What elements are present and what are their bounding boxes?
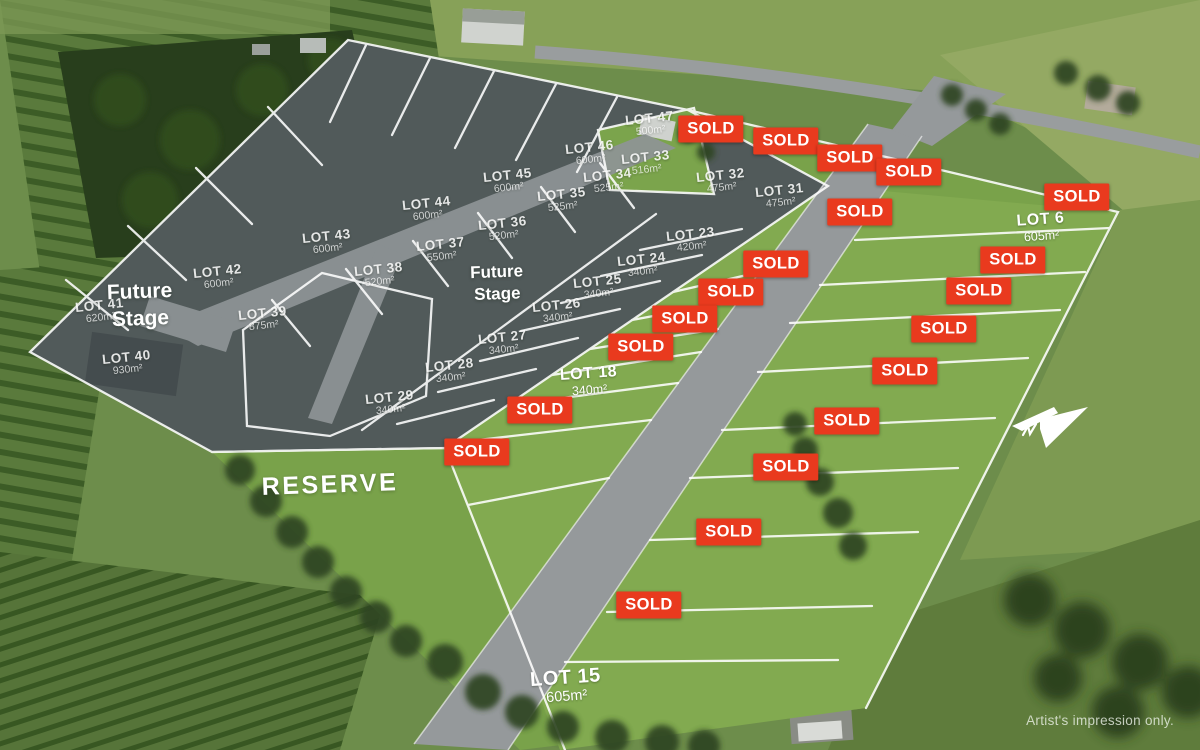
aerial-site-plan: LOT 47500m²LOT 46600m²LOT 45600m²LOT 446… bbox=[0, 0, 1200, 750]
aerial-photo-background bbox=[0, 0, 1200, 750]
